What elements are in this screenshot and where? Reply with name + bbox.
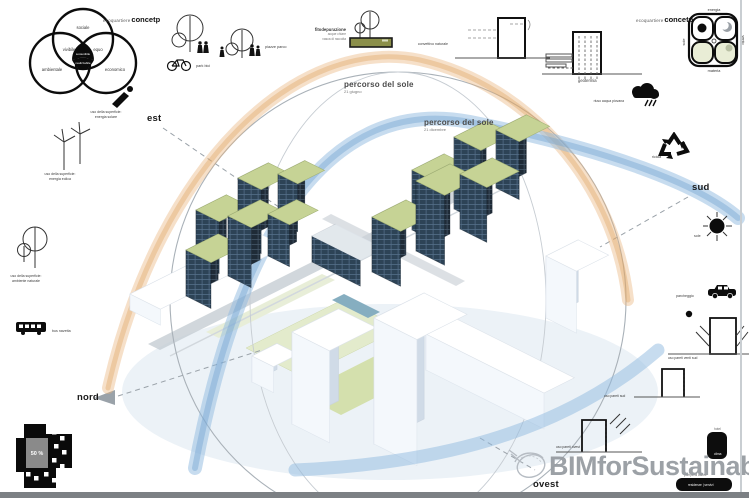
wind-label: uso della superficie: energia eolica [38, 172, 82, 182]
venn-label-right: economico [105, 67, 126, 72]
car-icon [706, 282, 738, 300]
plan-value-b: 50 % [54, 424, 64, 429]
eco-header-topleft: ecoquartiereconcetp [103, 9, 160, 27]
plan-value-a: 50 % [31, 451, 44, 457]
wall-sud-icon [632, 366, 702, 402]
venn-label-left: ambientale [42, 67, 63, 72]
venn-label-top: sociale [76, 25, 90, 30]
park-icons [170, 10, 280, 60]
fito-label: fitodepurazione acque chiare vasca di ra… [290, 27, 346, 42]
right-edge-line [740, 0, 742, 492]
pill-top-label: hotel [714, 427, 721, 431]
venn-label-tl: vivibile [63, 47, 76, 52]
building-face [374, 318, 417, 466]
bottom-bar [0, 492, 749, 498]
solar-label: uso della superficie: energia solare [84, 110, 128, 120]
pill-bar-text: residenze | servizi [688, 483, 713, 487]
compass-est: est [147, 113, 161, 124]
rain-cloud-icon [626, 82, 662, 108]
venn-label-center: sostenibile [76, 52, 91, 56]
rain-label: riuso acqua piovana [592, 99, 624, 104]
solar-panel-icon [106, 84, 136, 110]
bus-label: bus navetta [52, 329, 71, 334]
sun-icon [700, 210, 734, 244]
geotermia-icon [540, 24, 645, 84]
sun-path-winter-label: percorso del sole 21 dicembre [424, 118, 494, 132]
venn-label-tr: equo [93, 47, 103, 52]
plan-diagram: 50 % 50 % [16, 416, 80, 492]
matrix-label-left: sole [682, 39, 686, 46]
compass-sud: sud [692, 182, 710, 193]
recycle-icon [658, 132, 690, 162]
venn-center-fill [72, 42, 94, 60]
bim-logo-icon [505, 444, 551, 484]
recycle-label: ricicla [652, 155, 661, 160]
sun-path-summer-label: percorso del sole 21 giugno [344, 80, 414, 94]
building-face [416, 181, 445, 265]
south-wall-label: uso pareti venti sud [668, 356, 697, 361]
bus-icon [15, 320, 49, 336]
matrix-label-top: energia [708, 8, 722, 12]
wind-turbines-icon [42, 120, 94, 172]
matrix-label-right: vento [741, 35, 745, 44]
sun-dot-icon [698, 24, 707, 33]
concept-board: sociale vivibile equo ambientale economi… [0, 0, 749, 498]
energy-matrix: energia materia sole vento [682, 4, 746, 76]
bike-icon [166, 56, 194, 72]
watermark-text: BIMforSustainability [549, 451, 749, 482]
nature-label: uso della superficie: ambiente naturale [4, 274, 48, 284]
venn-label-bottom: realizzabile [75, 61, 90, 65]
matrix-label-bottom: materia [708, 69, 722, 73]
south-wall-icon [666, 306, 749, 360]
wall-ovest-label: uso pareti ovest [556, 445, 580, 450]
parking-label: parcheggio [676, 294, 694, 299]
tree-icon-left [14, 222, 58, 272]
building-face [292, 332, 330, 443]
compass-nord: nord [77, 392, 99, 403]
sun-label: sole [694, 234, 701, 239]
fito-icon [346, 8, 396, 50]
building-face [228, 216, 251, 288]
wall-sud-label: uso pareti sud [604, 394, 625, 399]
